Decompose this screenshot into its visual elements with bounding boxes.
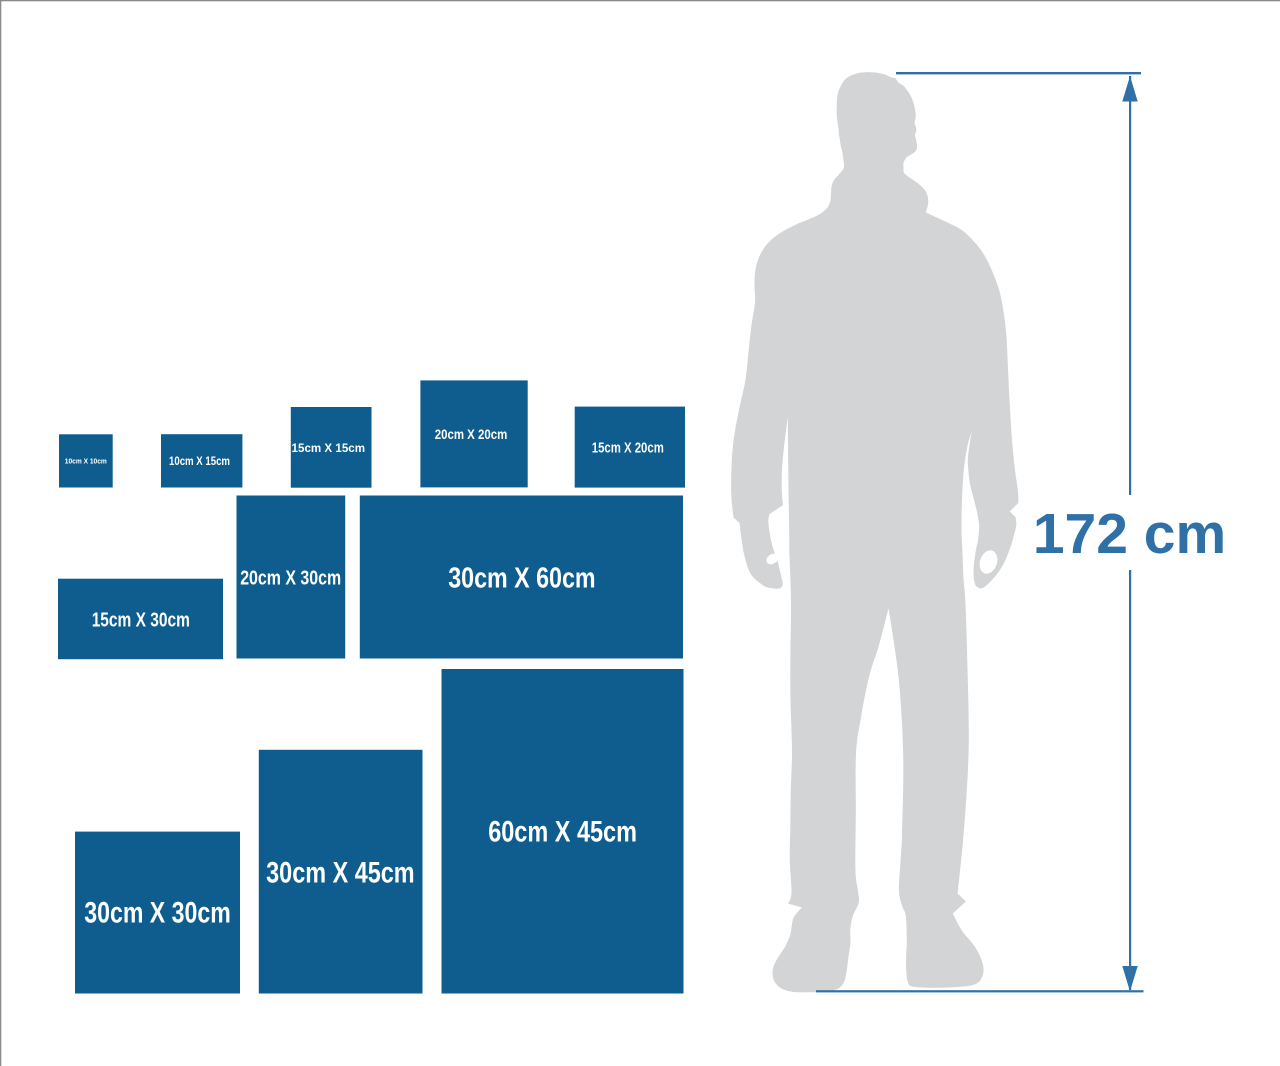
svg-text:20cm X 20cm: 20cm X 20cm: [435, 426, 508, 442]
svg-text:30cm X 45cm: 30cm X 45cm: [266, 856, 415, 889]
svg-text:172 cm: 172 cm: [1033, 502, 1226, 566]
svg-text:60cm X 45cm: 60cm X 45cm: [488, 816, 637, 849]
svg-text:10cm X 15cm: 10cm X 15cm: [169, 454, 230, 468]
svg-text:15cm X 30cm: 15cm X 30cm: [92, 609, 190, 631]
svg-text:30cm X 30cm: 30cm X 30cm: [84, 896, 231, 929]
svg-text:15cm X 15cm: 15cm X 15cm: [292, 441, 366, 455]
svg-text:20cm X 30cm: 20cm X 30cm: [240, 567, 341, 590]
svg-text:10cm X 10cm: 10cm X 10cm: [65, 457, 107, 466]
svg-text:30cm X 60cm: 30cm X 60cm: [448, 563, 595, 595]
svg-text:15cm X 20cm: 15cm X 20cm: [592, 439, 664, 456]
